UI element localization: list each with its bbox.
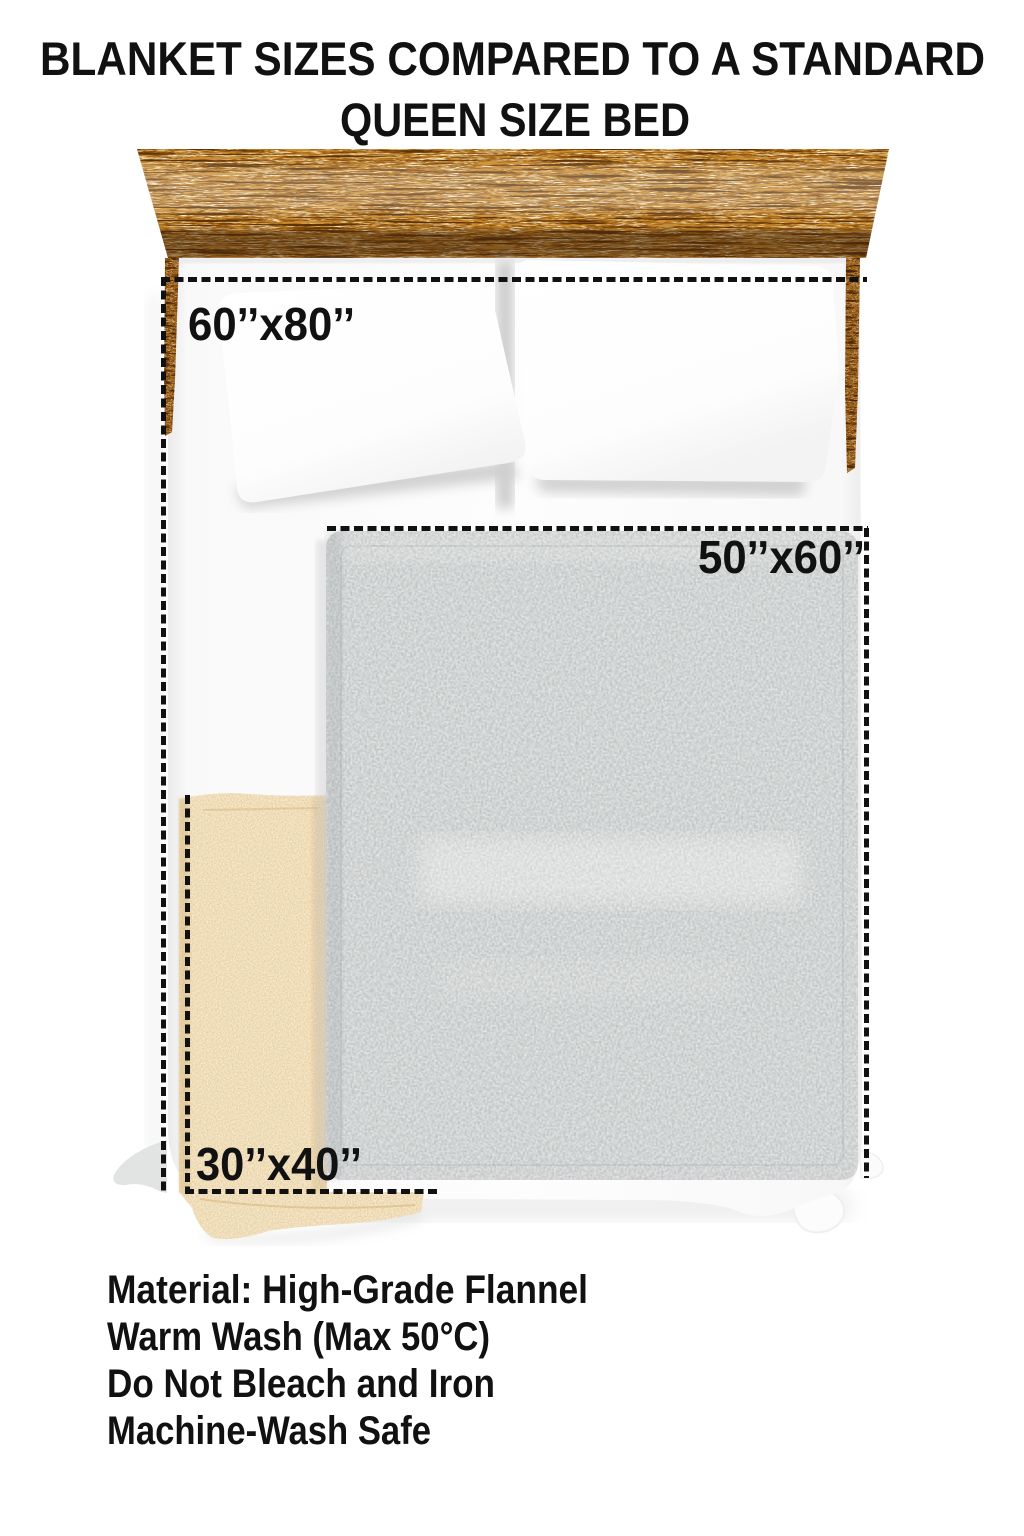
svg-text:Warm Wash (Max 50°C): Warm Wash (Max 50°C) (107, 1315, 490, 1359)
svg-text:30’’x40’’: 30’’x40’’ (196, 1138, 362, 1190)
svg-text:BLANKET SIZES COMPARED TO A ST: BLANKET SIZES COMPARED TO A STANDARD (40, 32, 985, 85)
svg-text:Material: High-Grade Flannel: Material: High-Grade Flannel (107, 1268, 588, 1312)
svg-text:QUEEN SIZE BED: QUEEN SIZE BED (340, 93, 690, 146)
svg-text:60’’x80’’: 60’’x80’’ (188, 298, 355, 350)
svg-text:50’’x60’’: 50’’x60’’ (698, 531, 865, 583)
svg-text:Do Not Bleach and Iron: Do Not Bleach and Iron (107, 1362, 495, 1406)
svg-text:Machine-Wash Safe: Machine-Wash Safe (107, 1409, 431, 1453)
